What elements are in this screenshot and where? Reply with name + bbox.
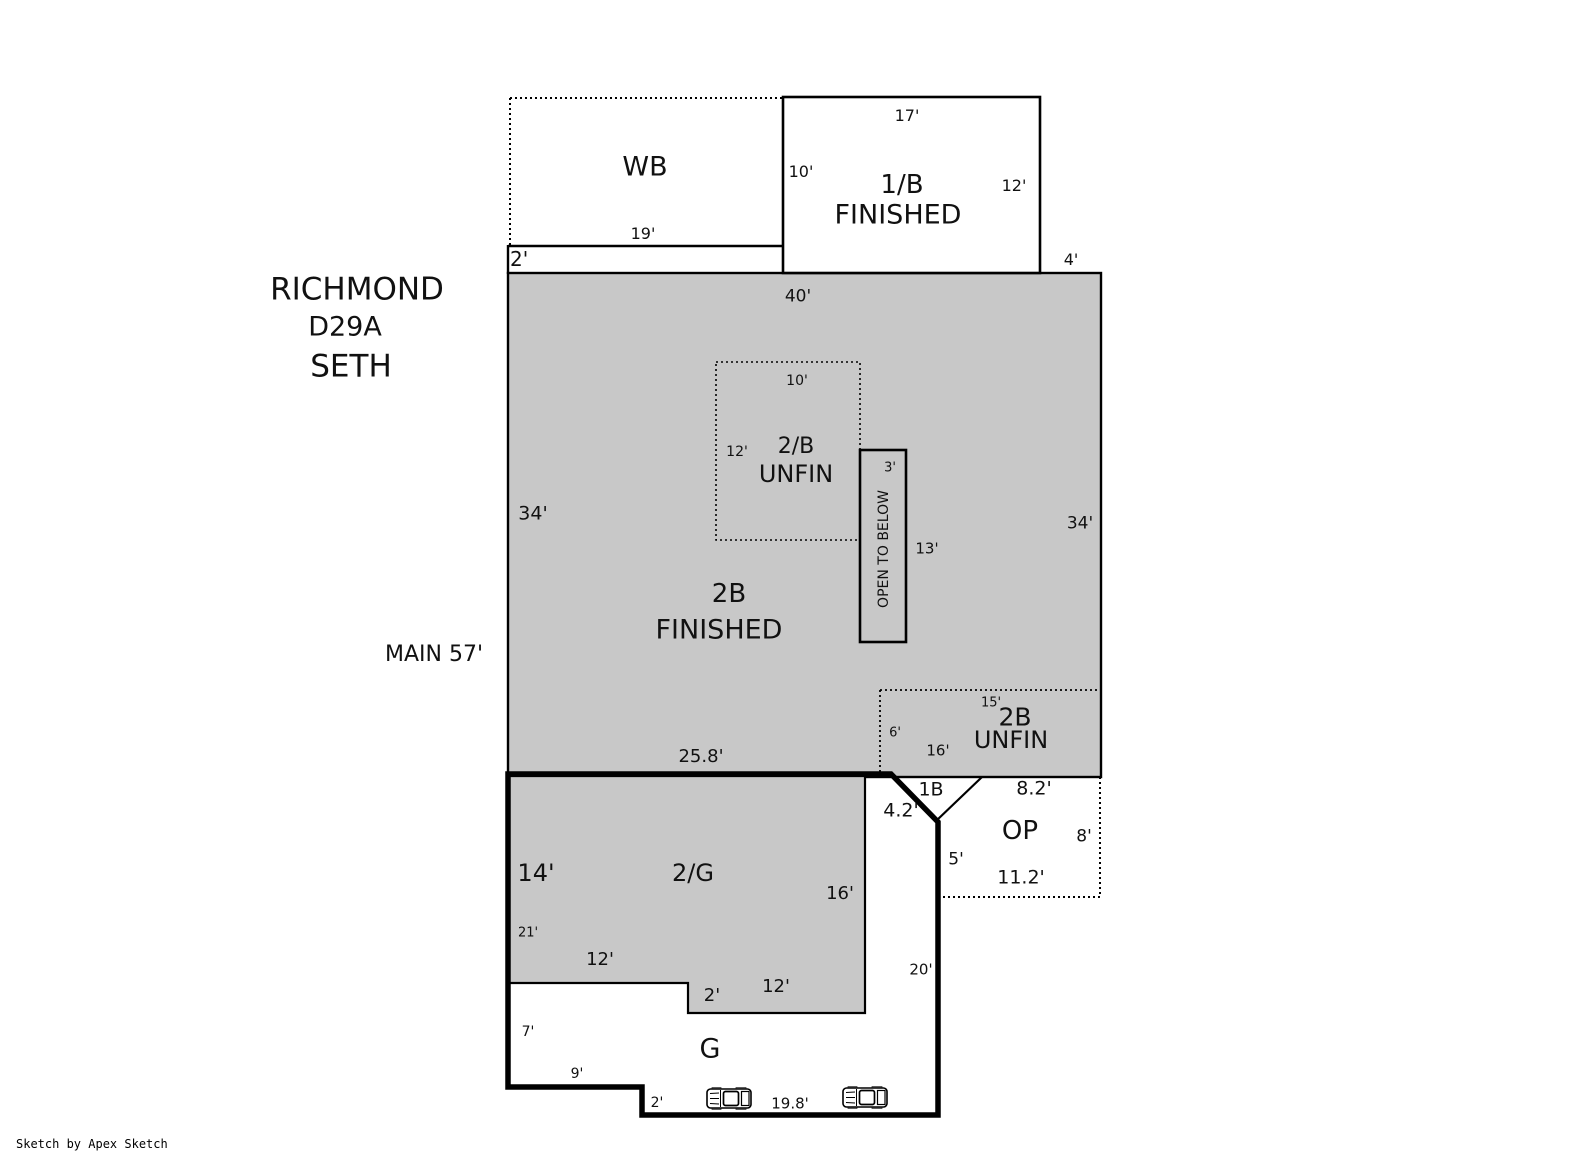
room-status-upper2b: FINISHED xyxy=(656,617,783,644)
floorplan-sketch: RICHMOND D29A SETH MAIN 57' WB 19' 17' 1… xyxy=(0,0,1585,1163)
dim-garage-left: 7' xyxy=(522,1025,535,1039)
floor-note-label: MAIN 57' xyxy=(385,644,483,666)
room-label-garage: G xyxy=(700,1036,721,1063)
car-icon xyxy=(843,1087,887,1109)
dim-porch-bottom: 11.2' xyxy=(997,869,1045,888)
dim-main-top: 40' xyxy=(785,289,811,306)
room-status-bed2b: UNFIN xyxy=(759,462,833,486)
room-label-open-to-below: OPEN TO BELOW xyxy=(877,490,891,608)
dim-halfbath-right: 12' xyxy=(1002,178,1027,194)
dim-garageupper-inner: 21' xyxy=(518,927,538,940)
dim-main-right: 34' xyxy=(1067,516,1093,533)
room-label-halfbath: 1/B xyxy=(880,172,923,198)
dim-otb-width: 3' xyxy=(884,462,896,475)
dim-halfbath-top: 17' xyxy=(895,108,920,124)
dim-bed2b-top: 10' xyxy=(786,374,808,388)
dim-garageupper-bottomleft: 12' xyxy=(586,951,614,969)
dim-main-bottom: 25.8' xyxy=(678,748,723,766)
room-label-bed2b: 2/B xyxy=(778,436,815,458)
plan-title-code: D29A xyxy=(308,314,382,341)
room-label-upper2b: 2B xyxy=(712,581,746,607)
garage-upper-area xyxy=(508,776,865,1013)
room-label-stair1b: 1B xyxy=(918,781,943,800)
plan-title-elevation: SETH xyxy=(310,352,392,383)
car-icon xyxy=(707,1088,751,1110)
dim-garageupper-right: 16' xyxy=(826,885,854,903)
dim-bed2b-left: 12' xyxy=(726,445,748,459)
dim-garageupper-left: 14' xyxy=(517,861,554,885)
room-label-wb: WB xyxy=(622,154,667,181)
dim-unfin-bottom: 16' xyxy=(926,744,949,759)
dim-garage-bottom: 19.8' xyxy=(771,1097,809,1112)
room-status-unfin2b: UNFIN xyxy=(974,728,1048,752)
dim-otb-height: 13' xyxy=(915,542,938,557)
room-label-porch: OP xyxy=(1002,818,1038,844)
dim-unfin-left: 6' xyxy=(889,727,901,740)
dim-garage-step: 2' xyxy=(651,1096,664,1110)
dim-stair-diag: 4.2' xyxy=(883,802,918,821)
dim-garage-bottomleft: 9' xyxy=(571,1067,584,1081)
room-label-garageupper: 2/G xyxy=(672,861,714,885)
dim-porch-top: 8.2' xyxy=(1016,780,1051,799)
dim-main-gap: 4' xyxy=(1064,252,1079,268)
room-status-halfbath: FINISHED xyxy=(835,202,962,229)
sketch-credit: Sketch by Apex Sketch xyxy=(16,1137,168,1151)
dim-garageupper-bottomright: 12' xyxy=(762,978,790,996)
dim-main-left: 34' xyxy=(518,505,547,524)
plan-title-model: RICHMOND xyxy=(270,275,444,306)
dim-wb-bottom: 19' xyxy=(631,226,656,242)
dim-garage-right: 20' xyxy=(909,963,932,978)
dim-halfbath-left: 10' xyxy=(789,164,814,180)
dim-porch-left: 5' xyxy=(948,852,964,869)
dim-garageupper-step: 2' xyxy=(704,987,720,1005)
dim-strip: 2' xyxy=(510,249,528,269)
dim-porch-right: 8' xyxy=(1076,829,1092,846)
main-floor-area xyxy=(508,273,1101,777)
